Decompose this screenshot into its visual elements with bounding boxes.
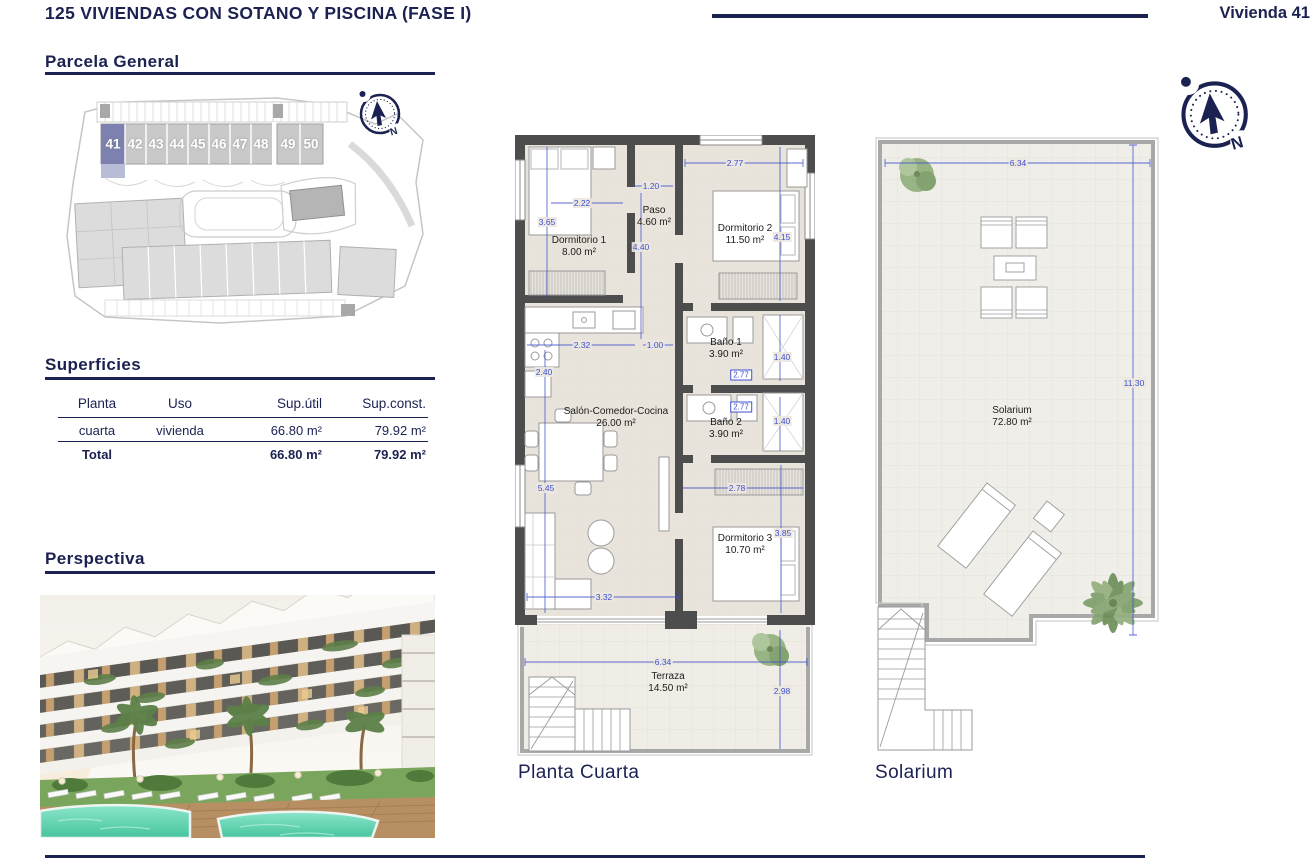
perspectiva-heading: Perspectiva: [45, 549, 145, 569]
room-label-dormitorio1: Dormitorio 18.00 m²: [552, 235, 606, 259]
table-total-label: Total: [58, 447, 136, 462]
brochure-sheet: 125 VIVIENDAS CON SOTANO Y PISCINA (FASE…: [0, 0, 1315, 863]
dimension-label: 2.77: [726, 158, 745, 168]
site-unit-number: 41: [105, 137, 120, 152]
perspectiva-image: [40, 595, 435, 838]
dimension-label: 3.65: [538, 217, 557, 227]
site-unit-number: 45: [190, 137, 205, 152]
dimension-label: 3.85: [774, 528, 793, 538]
solarium-plan: Solarium72.80 m² 6.34 11.30: [875, 135, 1165, 763]
site-unit-number: 43: [148, 137, 163, 152]
site-unit-number: 46: [211, 137, 226, 152]
room-label-terraza: Terraza14.50 m²: [648, 671, 687, 695]
parcela-heading: Parcela General: [45, 52, 180, 72]
solarium-caption: Solarium: [875, 762, 953, 784]
page-title: 125 VIVIENDAS CON SOTANO Y PISCINA (FASE…: [45, 3, 472, 24]
dimension-label: 4.15: [773, 232, 792, 242]
dimension-label: 4.40: [632, 242, 651, 252]
dimension-label: 1.00: [646, 340, 665, 350]
dimension-label: 2.77: [730, 402, 752, 413]
site-unit-number: 49: [280, 137, 295, 152]
table-cell-suputil: 66.80 m²: [224, 423, 324, 438]
floorplan: Dormitorio 18.00 m² Paso4.60 m² Dormitor…: [515, 135, 815, 763]
table-cell-supconst: 79.92 m²: [324, 423, 428, 438]
room-label-dormitorio2: Dormitorio 211.50 m²: [718, 223, 772, 247]
table-header-uso: Uso: [136, 396, 224, 414]
table-header-supconst: Sup.const.: [324, 396, 428, 414]
site-unit-number: 50: [303, 137, 318, 152]
dimension-label: 3.32: [595, 592, 614, 602]
dimension-label: 6.34: [654, 657, 673, 667]
dimension-label: 1.40: [773, 352, 792, 362]
superficies-table: Planta Uso Sup.útil Sup.const. cuarta vi…: [58, 396, 430, 462]
room-label-bano1: Baño 13.90 m²: [709, 337, 743, 361]
dimension-label: 2.77: [730, 370, 752, 381]
solarium-drawing: [875, 135, 1165, 763]
dimension-label: 2.40: [535, 367, 554, 377]
dimension-label: 1.40: [773, 416, 792, 426]
perspectiva-underline: [45, 571, 435, 574]
site-unit-number: 47: [232, 137, 247, 152]
table-total-spacer: [136, 447, 224, 462]
dimension-label: 2.32: [573, 340, 592, 350]
superficies-underline: [45, 377, 435, 380]
room-label-salon: Salón-Comedor-Cocina26.00 m²: [564, 406, 669, 430]
site-unit-number: 44: [169, 137, 184, 152]
dimension-label: 5.45: [537, 483, 556, 493]
footer-rule: [45, 855, 1145, 858]
table-cell-uso: vivienda: [136, 423, 224, 438]
site-unit-number: 48: [253, 137, 268, 152]
site-unit-number: 42: [127, 137, 142, 152]
floorplan-caption: Planta Cuarta: [518, 762, 639, 784]
table-header-suputil: Sup.útil: [224, 396, 324, 414]
room-label-solarium: Solarium72.80 m²: [992, 405, 1031, 429]
table-rule: [58, 441, 428, 442]
table-total-supconst: 79.92 m²: [324, 447, 428, 462]
dimension-label: 2.98: [773, 686, 792, 696]
compass-north-icon: N: [354, 88, 404, 138]
dimension-label: 2.22: [573, 198, 592, 208]
room-label-paso: Paso4.60 m²: [637, 205, 671, 229]
dimension-label: 2.78: [728, 483, 747, 493]
table-rule: [58, 417, 428, 418]
superficies-heading: Superficies: [45, 355, 141, 375]
vivienda-label: Vivienda 41: [1040, 4, 1310, 23]
dimension-label: 1.20: [642, 181, 661, 191]
table-header-planta: Planta: [58, 396, 136, 414]
dimension-label: 11.30: [1123, 378, 1146, 388]
room-label-bano2: Baño 23.90 m²: [709, 417, 743, 441]
compass-north-icon: N: [1172, 72, 1254, 154]
table-cell-planta: cuarta: [58, 423, 136, 438]
table-total-suputil: 66.80 m²: [224, 447, 324, 462]
dimension-label: 6.34: [1009, 158, 1028, 168]
parcela-underline: [45, 72, 435, 75]
room-label-dormitorio3: Dormitorio 310.70 m²: [718, 533, 772, 557]
